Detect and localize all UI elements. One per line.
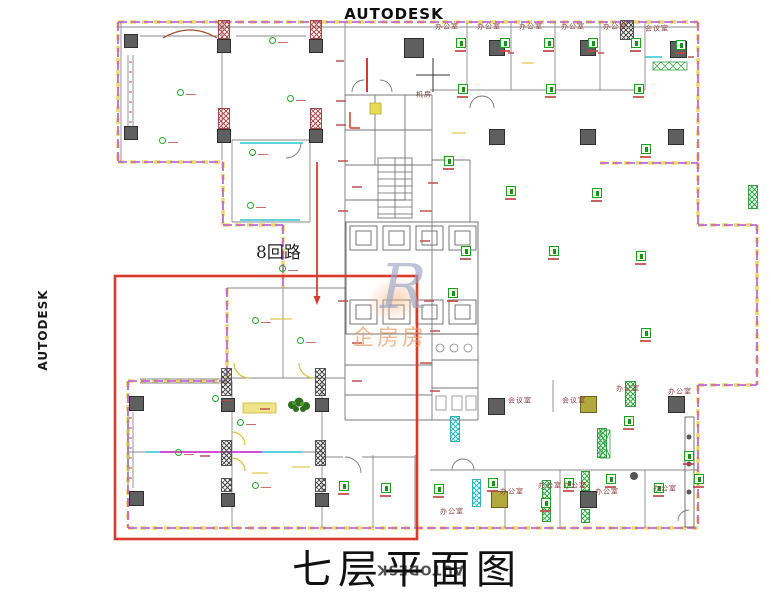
panel-glyph bbox=[545, 501, 548, 506]
hatched-column bbox=[310, 108, 322, 129]
circuit-code-mark bbox=[278, 42, 288, 44]
distribution-panel-icon bbox=[631, 38, 641, 48]
distribution-panel-icon bbox=[381, 483, 391, 493]
column bbox=[309, 129, 323, 143]
circuit-code-mark bbox=[256, 207, 266, 209]
circuit-code-mark bbox=[288, 270, 298, 272]
symbol-overlay: 办公室办公室办公室办公室办公室会议室会议室会议室办公室办公室办公室办公室办公室办… bbox=[0, 0, 771, 600]
room-label: 会议室 bbox=[645, 26, 669, 33]
circuit-code-mark bbox=[693, 486, 704, 488]
circuit-code-mark bbox=[221, 400, 231, 402]
distribution-panel-icon bbox=[339, 481, 349, 491]
light-fixture-icon bbox=[175, 449, 182, 456]
circuit-code-mark bbox=[186, 94, 196, 96]
light-fixture-icon bbox=[247, 202, 254, 209]
column bbox=[124, 126, 138, 140]
circuit-code-mark bbox=[424, 300, 434, 302]
distribution-panel-icon bbox=[434, 484, 444, 494]
dimension-mark bbox=[252, 472, 268, 474]
circuit-code-mark bbox=[336, 124, 346, 126]
circuit-code-mark bbox=[683, 463, 694, 465]
room-label: 办公室 bbox=[653, 486, 677, 493]
panel-glyph bbox=[553, 249, 556, 254]
distribution-panel-icon bbox=[684, 451, 694, 461]
circuit-code-mark bbox=[261, 487, 271, 489]
room-label: 办公室 bbox=[668, 389, 692, 396]
distribution-panel-icon bbox=[676, 40, 686, 50]
distribution-panel-icon bbox=[624, 416, 634, 426]
circuit-code-mark bbox=[548, 258, 559, 260]
circuit-code-mark bbox=[430, 330, 440, 332]
panel-glyph bbox=[492, 481, 495, 486]
hatched-column-green bbox=[581, 509, 590, 523]
panel-glyph bbox=[465, 249, 468, 254]
room-label: 机房 bbox=[416, 92, 432, 99]
column bbox=[309, 39, 323, 53]
panel-glyph bbox=[452, 291, 455, 296]
circuit-code-mark bbox=[563, 490, 574, 492]
distribution-panel-icon bbox=[694, 474, 704, 484]
distribution-panel-icon bbox=[461, 246, 471, 256]
circuit-code-mark bbox=[246, 424, 256, 426]
distribution-panel-icon bbox=[506, 186, 516, 196]
circuit-code-mark bbox=[443, 168, 454, 170]
panel-glyph bbox=[548, 41, 551, 46]
dimension-mark bbox=[522, 62, 534, 64]
light-fixture-icon bbox=[297, 337, 304, 344]
room-label: 办公室 bbox=[563, 483, 587, 490]
distribution-panel-icon bbox=[541, 498, 551, 508]
column bbox=[668, 396, 685, 413]
column bbox=[129, 491, 144, 506]
hatched-column bbox=[221, 478, 232, 492]
circuit-code-mark bbox=[352, 380, 362, 382]
circuit-code-mark bbox=[545, 96, 556, 98]
distribution-panel-icon bbox=[456, 38, 466, 48]
panel-glyph bbox=[438, 487, 441, 492]
panel-glyph bbox=[635, 41, 638, 46]
room-label: 办公室 bbox=[435, 24, 459, 31]
room-label: 办公室 bbox=[500, 489, 524, 496]
circuit-code-mark bbox=[640, 156, 651, 158]
column bbox=[124, 34, 138, 48]
circuit-code-mark bbox=[338, 160, 348, 162]
column bbox=[315, 493, 329, 507]
column bbox=[217, 39, 231, 53]
column bbox=[488, 398, 505, 415]
panel-glyph bbox=[343, 484, 346, 489]
distribution-panel-icon bbox=[488, 478, 498, 488]
watermark-left: AUTODESK bbox=[36, 289, 50, 370]
circuit-code-mark bbox=[430, 390, 440, 392]
dimension-mark bbox=[452, 132, 466, 134]
room-label: 办公室 bbox=[616, 386, 640, 393]
circuit-code-mark bbox=[420, 240, 430, 242]
room-label: 会议室 bbox=[562, 398, 586, 405]
column bbox=[404, 38, 424, 58]
circuit-code-mark bbox=[460, 258, 471, 260]
circuit-code-mark bbox=[543, 50, 554, 52]
circuit-code-mark bbox=[675, 52, 686, 54]
panel-glyph bbox=[448, 159, 451, 164]
circuit-code-mark bbox=[428, 182, 438, 184]
drawing-title: 七层平面图 bbox=[292, 537, 522, 595]
circuit-code-mark bbox=[447, 300, 458, 302]
circuit-code-mark bbox=[633, 96, 644, 98]
circuit-code-mark bbox=[184, 454, 194, 456]
panel-glyph bbox=[504, 41, 507, 46]
panel-glyph bbox=[462, 87, 465, 92]
distribution-panel-icon bbox=[444, 156, 454, 166]
column bbox=[668, 129, 684, 145]
distribution-panel-icon bbox=[592, 188, 602, 198]
panel-glyph bbox=[596, 191, 599, 196]
circuit-code-mark bbox=[587, 50, 598, 52]
panel-glyph bbox=[460, 41, 463, 46]
circuit-code-mark bbox=[640, 340, 651, 342]
circuit-code-mark bbox=[338, 210, 348, 212]
circuit-code-mark bbox=[352, 186, 362, 188]
distribution-panel-icon bbox=[458, 84, 468, 94]
room-label: 会议室 bbox=[508, 398, 532, 405]
circuit-code-mark bbox=[623, 428, 634, 430]
panel-glyph bbox=[698, 477, 701, 482]
room-label: 办公室 bbox=[595, 489, 619, 496]
circuit-code-mark bbox=[598, 52, 604, 54]
circuit-code-mark bbox=[457, 96, 468, 98]
circuit-code-mark bbox=[380, 495, 391, 497]
light-fixture-icon bbox=[252, 317, 259, 324]
hatched-column-green bbox=[597, 428, 607, 458]
circuit-code-mark bbox=[352, 342, 362, 344]
panel-glyph bbox=[638, 87, 641, 92]
circuit-code-mark bbox=[261, 322, 271, 324]
circuit-code-mark bbox=[688, 56, 694, 58]
room-label: 办公室 bbox=[538, 483, 562, 490]
circuit-code-mark bbox=[168, 142, 178, 144]
circuit-code-mark bbox=[258, 154, 268, 156]
circuit-code-mark bbox=[260, 408, 270, 410]
dimension-mark bbox=[270, 318, 292, 320]
light-fixture-icon bbox=[237, 419, 244, 426]
circuit-code-mark bbox=[455, 50, 466, 52]
hatched-column bbox=[310, 20, 322, 39]
room-label: 办公室 bbox=[561, 24, 585, 31]
distribution-panel-icon bbox=[641, 328, 651, 338]
panel-glyph bbox=[680, 43, 683, 48]
hatched-column-cyan bbox=[472, 479, 481, 507]
distribution-panel-icon bbox=[448, 288, 458, 298]
light-fixture-icon bbox=[287, 95, 294, 102]
panel-glyph bbox=[610, 477, 613, 482]
hatched-column bbox=[218, 108, 230, 129]
distribution-panel-icon bbox=[549, 246, 559, 256]
room-label: 办公室 bbox=[603, 24, 627, 31]
distribution-panel-icon bbox=[606, 474, 616, 484]
circuit-code-mark bbox=[653, 495, 664, 497]
distribution-panel-icon bbox=[500, 38, 510, 48]
panel-glyph bbox=[592, 41, 595, 46]
column bbox=[221, 493, 235, 507]
light-fixture-icon bbox=[279, 265, 286, 272]
hatched-column bbox=[315, 478, 326, 492]
dimension-mark bbox=[292, 466, 310, 468]
light-fixture-icon bbox=[212, 395, 219, 402]
room-label: 办公室 bbox=[477, 24, 501, 31]
column bbox=[580, 129, 596, 145]
distribution-panel-icon bbox=[546, 84, 556, 94]
distribution-panel-icon bbox=[641, 144, 651, 154]
distribution-panel-icon bbox=[634, 84, 644, 94]
circuit-code-mark bbox=[336, 100, 346, 102]
hatched-column bbox=[221, 440, 232, 466]
distribution-panel-icon bbox=[636, 251, 646, 261]
watermark-top: AUTODESK bbox=[344, 5, 443, 23]
panel-glyph bbox=[688, 454, 691, 459]
room-label: 办公室 bbox=[440, 509, 464, 516]
column bbox=[129, 396, 144, 411]
panel-glyph bbox=[640, 254, 643, 259]
hatched-column bbox=[221, 368, 232, 396]
circuit-code-mark bbox=[591, 200, 602, 202]
light-fixture-icon bbox=[159, 137, 166, 144]
column bbox=[315, 398, 329, 412]
light-fixture-icon bbox=[177, 89, 184, 96]
hatched-column bbox=[315, 440, 326, 466]
panel-glyph bbox=[628, 419, 631, 424]
hatched-column-cyan bbox=[450, 416, 460, 442]
circuit-code-mark bbox=[433, 496, 444, 498]
circuit-code-mark bbox=[487, 490, 498, 492]
circuit-code-mark bbox=[338, 493, 349, 495]
circuit-code-mark bbox=[200, 455, 210, 457]
circuit-code-mark bbox=[336, 60, 344, 62]
room-label: 办公室 bbox=[519, 24, 543, 31]
panel-glyph bbox=[645, 331, 648, 336]
light-fixture-icon bbox=[252, 482, 259, 489]
light-fixture-icon bbox=[249, 149, 256, 156]
panel-glyph bbox=[385, 486, 388, 491]
circuit-code-mark bbox=[630, 50, 641, 52]
distribution-panel-icon bbox=[588, 38, 598, 48]
circuit-code-mark bbox=[540, 510, 551, 512]
light-fixture-icon bbox=[269, 37, 276, 44]
hatched-column bbox=[218, 20, 230, 39]
circuit-code-mark bbox=[306, 342, 316, 344]
column bbox=[217, 129, 231, 143]
panel-glyph bbox=[645, 147, 648, 152]
panel-glyph bbox=[510, 189, 513, 194]
circuit-code-mark bbox=[635, 263, 646, 265]
circuit-code-mark bbox=[505, 198, 516, 200]
circuit-count-label: 8回路 bbox=[256, 238, 301, 263]
column bbox=[489, 129, 505, 145]
distribution-panel-icon bbox=[544, 38, 554, 48]
hatched-column bbox=[315, 368, 326, 396]
hatched-column-green bbox=[748, 185, 758, 209]
circuit-code-mark bbox=[420, 210, 432, 212]
circuit-code-mark bbox=[338, 300, 348, 302]
circuit-code-mark bbox=[508, 52, 514, 54]
cad-viewer-canvas: 办公室办公室办公室办公室办公室会议室会议室会议室办公室办公室办公室办公室办公室办… bbox=[0, 0, 771, 600]
circuit-code-mark bbox=[420, 362, 432, 364]
circuit-code-mark bbox=[296, 100, 306, 102]
panel-glyph bbox=[550, 87, 553, 92]
